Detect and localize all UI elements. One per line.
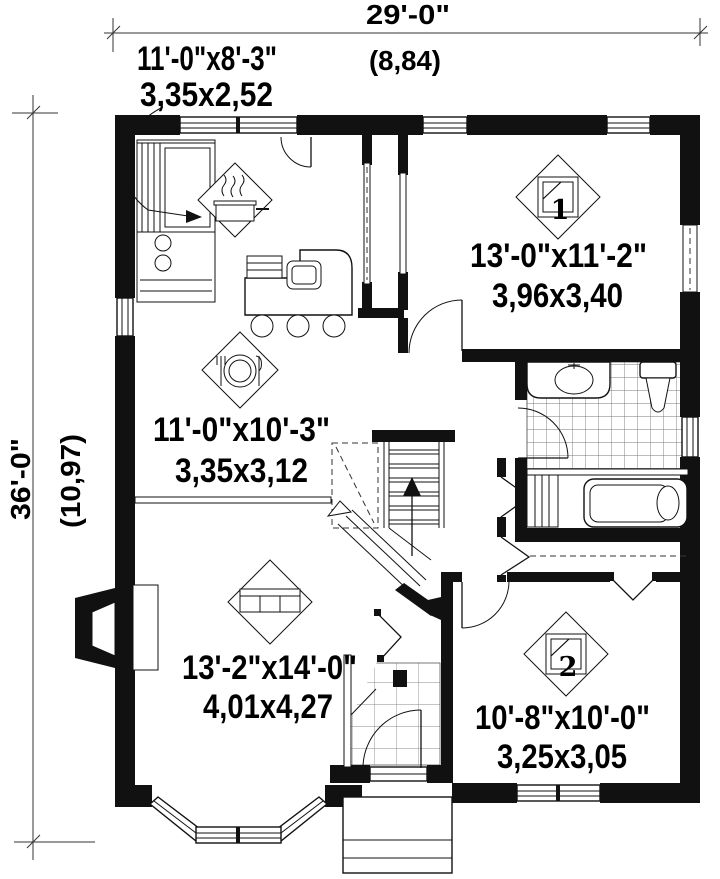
floor-plan-canvas: 1 2 29'-0" (8,84) 36'-0" (10,97) 11'-0"x… [0,0,720,879]
bedroom1-size-imperial: 13'-0"x11'-2" [470,237,647,275]
bedroom1-door [409,300,462,353]
kitchen-size-metric: 3,35x2,52 [140,76,273,114]
bedroom1-number: 1 [551,195,570,226]
bedroom2-number-badge: 2 [524,612,608,696]
bedroom2-closet-bifold-door [610,577,656,600]
overall-height-imperial: 36'-0" [5,438,36,520]
bedroom2-number: 2 [559,652,578,683]
dining-plate-icon [202,332,278,408]
bedroom1-window-left [423,117,467,133]
staircase [328,442,444,592]
living-size-metric: 4,01x4,27 [203,688,333,726]
understair-closet-door [374,609,401,662]
bay-window [150,797,327,843]
overall-width-imperial: 29'-0" [366,0,450,30]
bedroom1-window-right [607,117,650,133]
bathroom-window [682,417,698,457]
bedroom1-wall-detail [683,225,697,292]
bedroom2-size-imperial: 10'-8"x10'-0" [475,699,650,737]
overall-height-metric: (10,97) [55,434,86,528]
bathroom-vanity-sink [527,362,610,398]
dining-window [117,298,133,336]
kitchen-island [245,250,352,337]
overall-width-metric: (8,84) [369,45,441,76]
bedroom2-size-metric: 3,25x3,05 [497,738,627,776]
living-sofa-icon [228,560,312,644]
bedroom1-size-metric: 3,96x3,40 [492,277,623,315]
bathtub [584,479,687,527]
bedroom2-door [462,581,509,628]
kitchen-size-imperial: 11'-0"x8'-3" [137,40,277,78]
stairs-up-arrow [403,477,421,556]
porch-steps [343,797,452,873]
fireplace [75,585,158,670]
kitchen-window [180,117,297,133]
kitchen-counter [137,140,215,302]
island-stools [251,315,345,337]
living-size-imperial: 13'-2"x14'-0" [182,649,357,687]
linen-cabinet [527,475,558,527]
dining-size-imperial: 11'-0"x10'-3" [153,411,330,449]
dining-size-metric: 3,35x3,12 [175,452,308,490]
bedroom2-window [517,785,600,801]
bedroom1-number-badge: 1 [516,155,600,239]
kitchen-service-door [281,137,311,167]
